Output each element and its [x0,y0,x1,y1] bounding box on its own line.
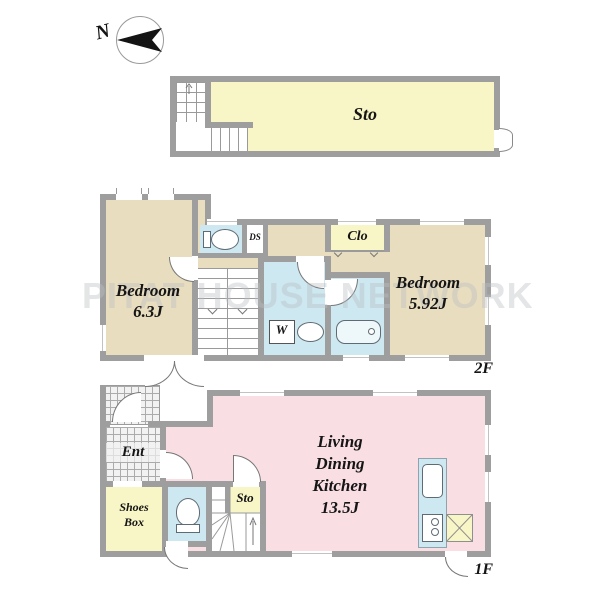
room-label-bedroom-east: Bedroom 5.92J [378,272,478,315]
window [113,481,142,487]
room-label-closet: Clo [332,228,383,246]
refrigerator-space-icon [446,514,473,542]
shoes-box-line2: Box [106,515,162,530]
room-label-duct-space: DS [245,232,265,243]
window [207,219,237,225]
wall [384,219,390,252]
window-line [420,221,464,222]
sink-icon [297,322,324,342]
bedroom-east-area: 5.92J [378,293,478,314]
window [240,390,284,396]
north-label: N [89,18,117,48]
window-line [207,221,237,222]
ldk-line2: Dining [278,453,402,475]
window-line [488,472,489,502]
stairs-lower-run [211,128,248,151]
bedroom-west-name: Bedroom [100,280,196,301]
kitchen-sink-icon [422,464,443,498]
window [116,194,142,200]
window [343,355,369,361]
room-label-washer: W [269,322,294,338]
room-label-attic-storage: Sto [310,103,420,126]
room-label-storage1f: Sto [228,490,262,506]
toilet-tank-icon [203,231,211,248]
floor2-label: 2F [443,360,493,378]
compass: N [90,12,170,70]
wall [325,219,331,252]
window [292,551,332,557]
bedroom-east-name: Bedroom [378,272,478,293]
window [148,194,174,200]
window [420,219,464,225]
bedroom-west-area: 6.3J [100,301,196,322]
window [338,219,376,225]
window-line [102,325,103,351]
burner-icon [431,528,439,536]
door-arc [174,361,204,387]
window-tick [141,188,142,194]
window [100,325,106,351]
window-line [405,357,449,358]
shoes-box-line1: Shoes [106,500,162,515]
ldk-line1: Living [278,431,402,453]
north-arrow-icon [114,16,166,62]
window-line [373,392,417,393]
window-line [240,392,284,393]
burner-icon [431,518,439,526]
room-label-bedroom-west: Bedroom 6.3J [100,280,196,323]
door-arc [499,128,513,152]
window-line [338,221,376,222]
ldk-line3: Kitchen [278,475,402,497]
ldk-area: 13.5J [278,497,402,519]
toilet-icon [211,229,239,250]
room-label-shoes-box: Shoes Box [106,500,162,530]
window-line [488,425,489,455]
window-line [488,297,489,325]
window-line [488,237,489,265]
door-arc [164,547,188,569]
room-label-entrance: Ent [106,443,160,462]
floor1-label: 1F [443,561,493,579]
window-tick [148,188,149,194]
window [373,390,417,396]
toilet-icon [176,498,200,526]
door-arc [145,361,175,387]
room-label-ldk: Living Dining Kitchen 13.5J [278,431,402,519]
bathtub-drain-icon [368,328,375,335]
toilet-tank-icon [176,524,200,533]
floor-plan-page: N PITAT HOUSE NETWORK Sto [0,0,600,600]
window-tick [173,188,174,194]
window-line [292,553,332,554]
stairs-landing [176,122,205,151]
window-line [343,357,369,358]
stairs-up-arrow-icon [184,83,194,95]
window-tick [116,188,117,194]
